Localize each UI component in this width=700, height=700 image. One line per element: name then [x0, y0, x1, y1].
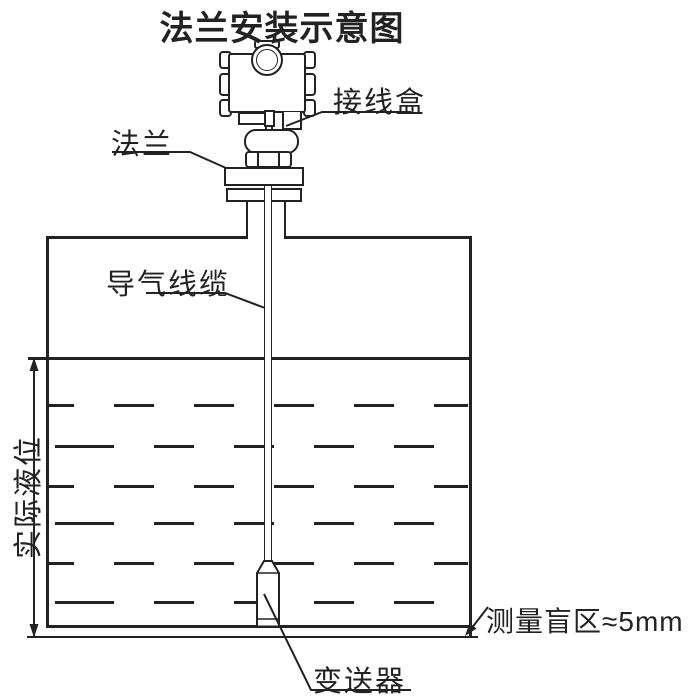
housing-step	[282, 112, 302, 130]
liquid-dash-row	[49, 601, 468, 604]
hex-nut	[245, 151, 292, 168]
liquid-dash-row	[49, 404, 468, 407]
hex-nut-facet-line	[257, 153, 259, 166]
tank-outer-bottom-line	[27, 636, 478, 638]
label-flange: 法兰	[111, 121, 173, 163]
hex-nut-facet-line	[278, 153, 280, 166]
liquid-dash-row	[49, 445, 468, 448]
label-transmitter: 变送器	[313, 658, 406, 700]
diagram-title: 法兰安装示意图	[150, 1, 414, 50]
label-air-cable: 导气线缆	[106, 261, 230, 303]
label-blind-zone: 测量盲区≈5mm	[486, 600, 684, 640]
air-guide-cable	[264, 186, 272, 566]
label-actual-level: 实际液位	[5, 427, 39, 567]
liquid-level-line	[28, 357, 469, 360]
tank-wall-extension	[469, 626, 472, 638]
display-dome-inner	[256, 49, 278, 71]
liquid-dash-row	[49, 522, 468, 525]
diagram-canvas: 法兰安装示意图 接线盒 法兰 导气线缆 变送器 测量盲区≈5mm 实际液位	[0, 0, 700, 700]
liquid-dash-row	[49, 562, 468, 565]
liquid-dash-row	[49, 485, 468, 488]
flange-plate	[224, 167, 304, 186]
label-junction-box: 接线盒	[333, 79, 426, 121]
